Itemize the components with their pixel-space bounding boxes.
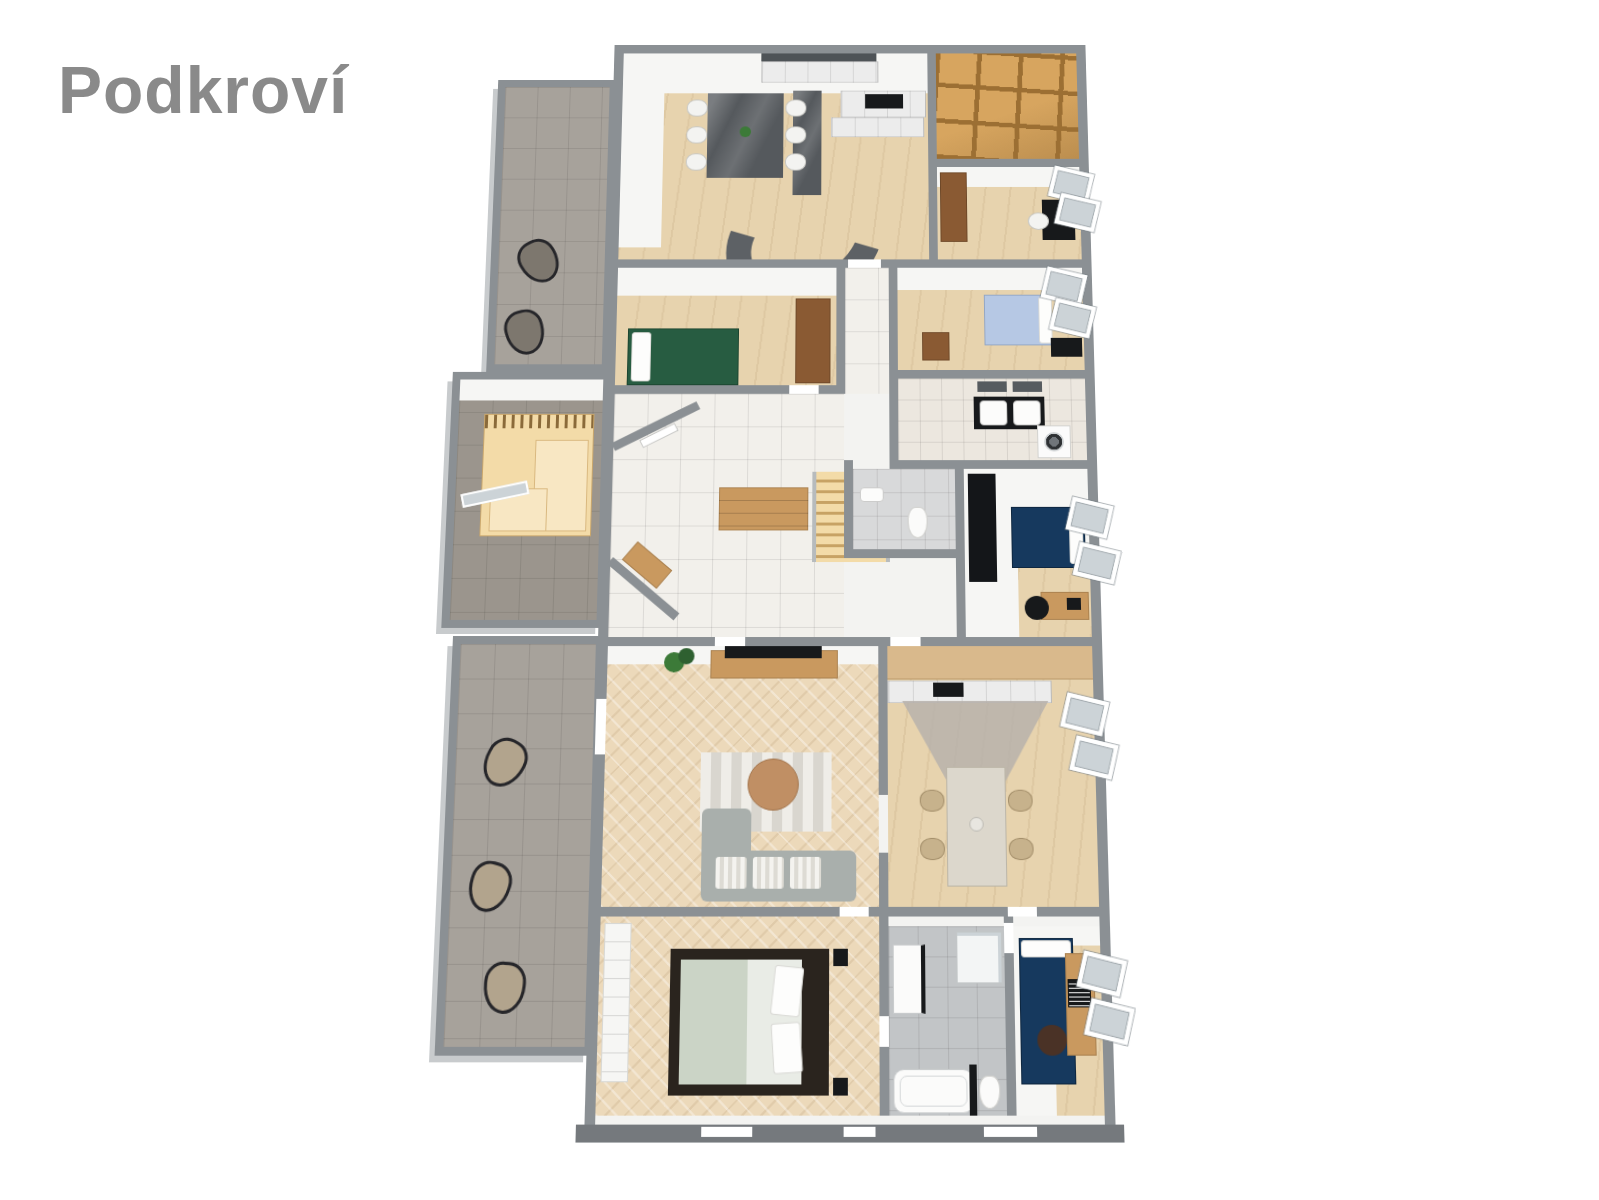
lower-terrace	[435, 636, 605, 1056]
kitchen-cabinets-lower	[831, 117, 924, 137]
desk-chair	[1028, 212, 1050, 229]
kitchen-backsplash	[761, 53, 876, 61]
black-wardrobe	[968, 474, 997, 582]
green-bedroom	[615, 268, 837, 385]
vanity	[893, 944, 926, 1013]
door-opening	[890, 637, 920, 646]
desk-chair	[1025, 596, 1050, 620]
dining-chair	[1008, 790, 1033, 812]
wall-face	[617, 268, 836, 296]
wall	[889, 370, 1085, 379]
lounge-chair	[481, 960, 528, 1015]
terrace-door-opening	[595, 699, 607, 755]
sofa-cushion	[790, 857, 821, 889]
door-opening	[848, 259, 881, 267]
wall	[836, 268, 845, 393]
sofa-cushion	[753, 857, 784, 889]
dining-chair	[785, 100, 806, 117]
washbasin	[860, 487, 884, 502]
bathtub	[893, 1069, 974, 1113]
bathroom-mirror	[977, 381, 1007, 391]
pouf	[1037, 1025, 1067, 1056]
wall	[608, 637, 1092, 646]
window-bottom	[844, 1127, 876, 1137]
dining-chair	[920, 790, 945, 812]
dining-kitchen	[618, 53, 929, 259]
cooktop	[933, 683, 964, 697]
partition	[969, 1065, 977, 1116]
bed-pillow	[1021, 940, 1071, 957]
door-opening	[1004, 923, 1014, 953]
bed-pillow	[770, 965, 805, 1018]
door-opening	[789, 385, 818, 394]
round-coffee-table	[747, 759, 799, 811]
chest-of-drawers	[719, 487, 809, 530]
sauna-room	[441, 372, 611, 628]
sauna-cabin	[479, 414, 594, 536]
door-opening	[715, 637, 745, 646]
floor-plan-page: Podkroví	[0, 0, 1599, 1200]
kitchen-cabinets	[761, 61, 878, 82]
built-in-wardrobe	[600, 923, 631, 1082]
toilet	[908, 507, 928, 538]
table-flowers	[969, 817, 984, 832]
living-room	[601, 646, 879, 907]
wardrobe	[940, 172, 968, 241]
wall	[890, 460, 1088, 469]
washbasin	[980, 400, 1008, 425]
sauna-slat-wall	[485, 415, 594, 428]
wall-face	[619, 53, 666, 247]
door-opening	[879, 1016, 889, 1047]
wall-cabinets	[887, 646, 1093, 679]
window-bottom	[701, 1127, 752, 1137]
master-bedroom	[595, 917, 879, 1116]
wardrobe	[795, 298, 830, 383]
dining-chair	[785, 153, 806, 170]
sauna-room-wall-face	[459, 379, 603, 400]
bed-pillow	[771, 1022, 803, 1075]
door-opening	[840, 907, 869, 917]
floorplan	[391, 45, 1138, 1172]
bed-pillow	[631, 332, 652, 381]
wc	[853, 469, 956, 549]
washbasin	[1013, 400, 1041, 425]
page-title: Podkroví	[58, 52, 348, 128]
laptop	[1067, 598, 1081, 610]
lounge-chair	[511, 233, 567, 290]
lounge-chair	[475, 731, 535, 794]
dining-chair	[1009, 838, 1034, 860]
dining-chair	[686, 126, 707, 143]
lounge-chair	[500, 305, 549, 359]
dresser	[922, 332, 950, 360]
bathroom-mirror	[1013, 381, 1043, 391]
kitchen-counter	[887, 681, 1052, 703]
shower	[956, 932, 1003, 984]
wall	[844, 549, 965, 558]
cooktop	[865, 94, 903, 108]
dining-chair	[687, 100, 708, 117]
upper-terrace	[486, 80, 617, 372]
nightstand	[833, 949, 848, 966]
window-bottom	[984, 1127, 1037, 1137]
washing-machine	[1037, 425, 1071, 458]
dining-chair	[785, 126, 806, 143]
door-opening	[1008, 907, 1037, 917]
attic-storage	[936, 53, 1079, 158]
sofa-cushion	[715, 857, 746, 889]
bathroom-lower	[888, 926, 1007, 1115]
desk	[1051, 338, 1083, 357]
corridor	[845, 268, 889, 394]
nightstand	[833, 1078, 848, 1096]
blue-bedroom-mid	[964, 469, 1092, 637]
dining-chair	[920, 838, 945, 860]
toilet	[979, 1076, 1001, 1109]
tv	[725, 646, 822, 658]
bathroom-upper	[898, 379, 1087, 461]
dining-chair	[686, 153, 707, 170]
kitchen-dining-second	[887, 646, 1099, 907]
table-vase	[740, 126, 752, 137]
lounge-chair	[462, 856, 517, 917]
wall	[844, 460, 853, 558]
